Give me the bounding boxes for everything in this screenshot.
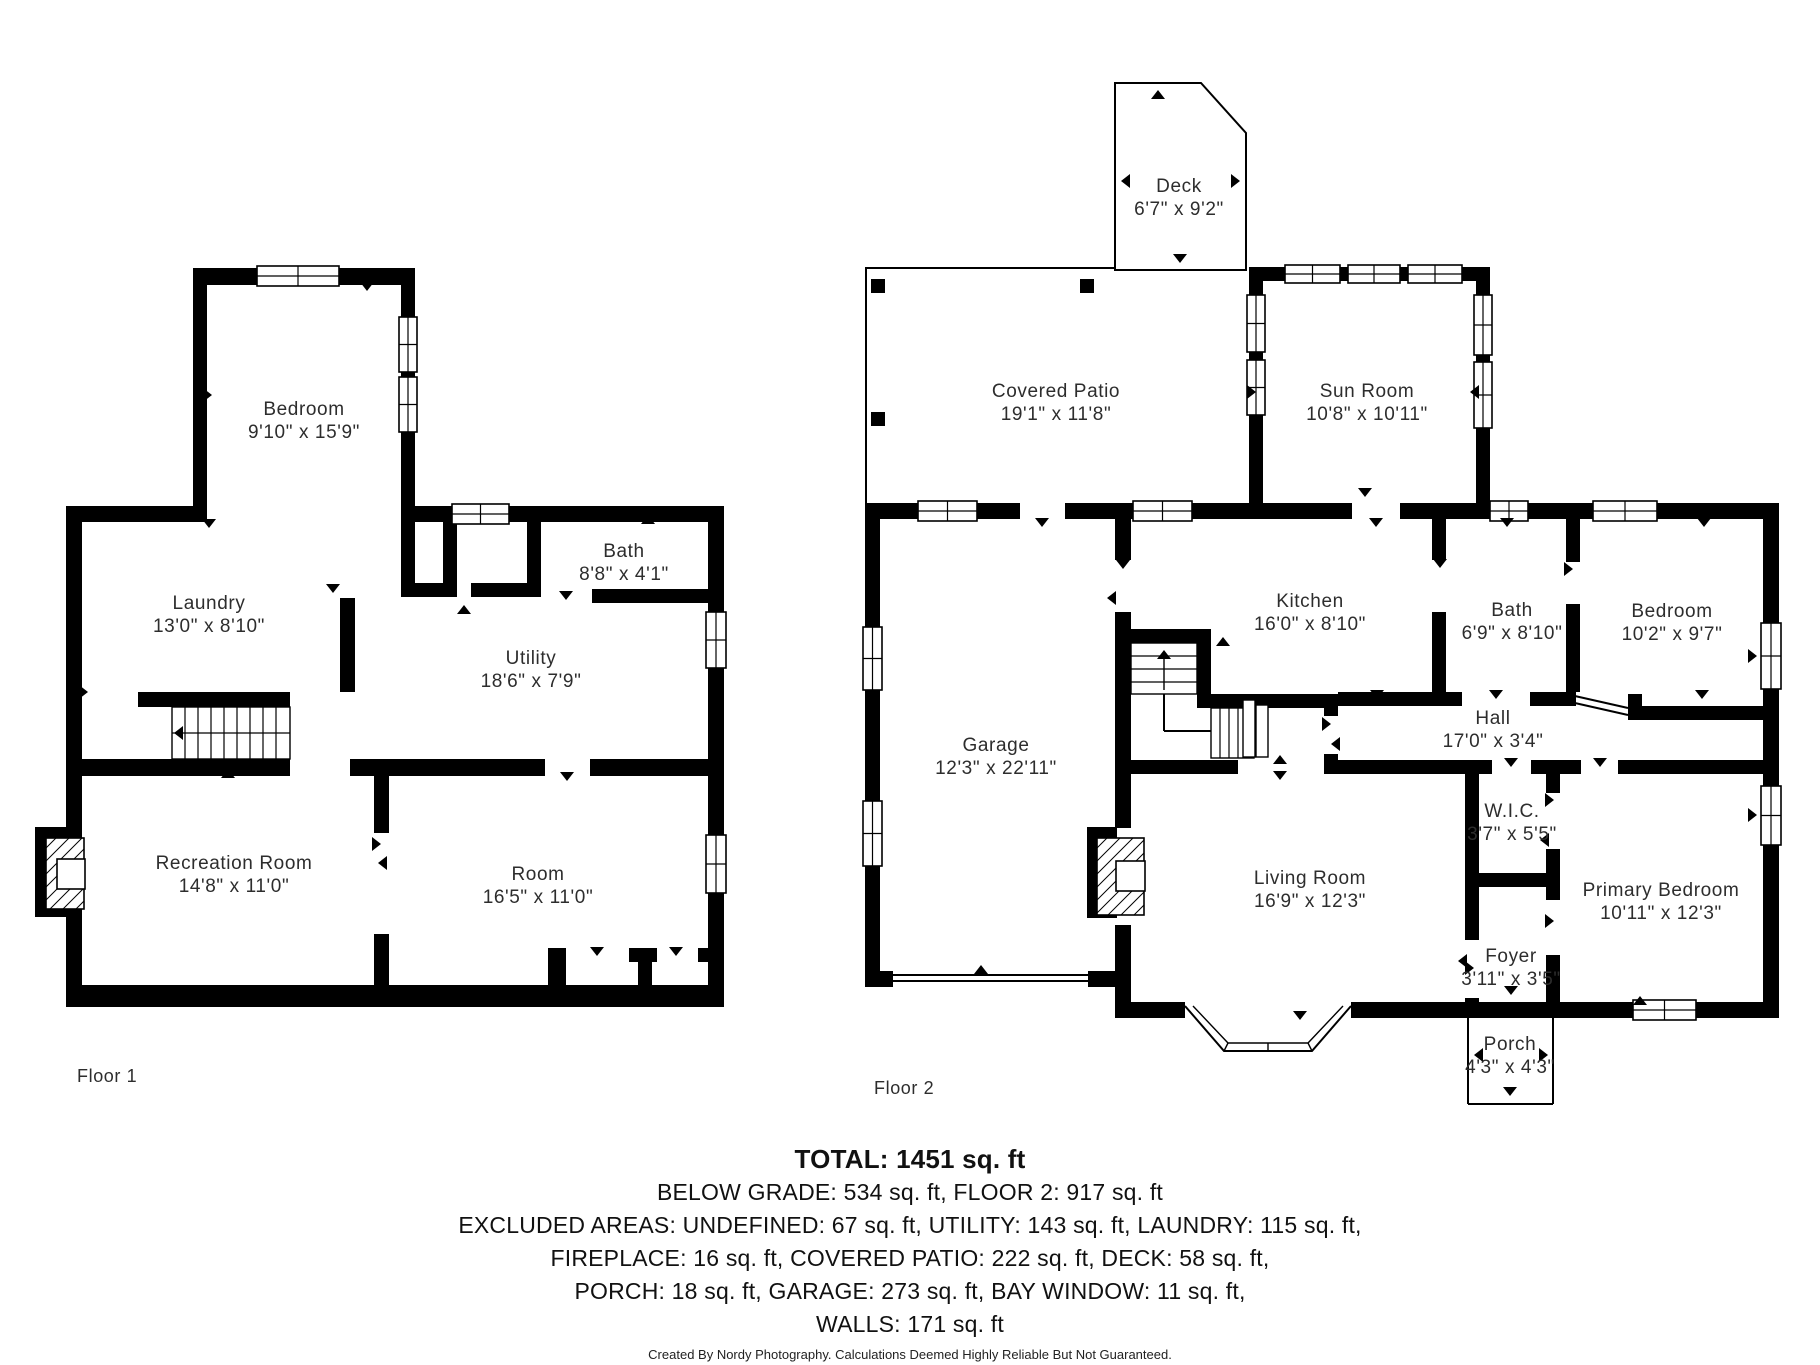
wall — [638, 948, 652, 999]
room-name: Bedroom — [248, 398, 360, 421]
wall — [1657, 503, 1777, 519]
door-marker — [1273, 755, 1287, 764]
bay-window-inner — [1193, 1006, 1343, 1043]
wall — [975, 503, 1020, 519]
wall — [865, 971, 893, 987]
door-marker — [1322, 717, 1331, 731]
wall — [1115, 925, 1131, 1018]
wall — [1197, 643, 1211, 708]
wall — [1566, 604, 1580, 692]
room-name: W.I.C. — [1467, 800, 1557, 823]
room-label-porch: Porch 4'3" x 4'3" — [1465, 1033, 1555, 1079]
door-marker — [1273, 771, 1287, 780]
door-marker — [457, 605, 471, 614]
door-marker — [1358, 488, 1372, 497]
wall — [1465, 873, 1560, 887]
summary-total: TOTAL: 1451 sq. ft — [0, 1142, 1820, 1176]
room-name: Laundry — [153, 592, 265, 615]
summary-line: BELOW GRADE: 534 sq. ft, FLOOR 2: 917 sq… — [0, 1176, 1820, 1209]
wall — [66, 506, 82, 1007]
room-dims: 13'0" x 8'10" — [153, 615, 265, 638]
wall — [1351, 1002, 1465, 1018]
wall — [401, 583, 457, 597]
room-label-wic: W.I.C. 3'7" x 5'5" — [1467, 800, 1557, 846]
room-name: Deck — [1134, 175, 1224, 198]
patio-post — [871, 412, 885, 426]
room-dims: 3'11" x 3'5" — [1461, 968, 1560, 991]
wall — [527, 522, 541, 583]
wall — [443, 522, 457, 583]
room-dims: 9'10" x 15'9" — [248, 421, 360, 444]
door-marker — [1489, 690, 1503, 699]
door-marker — [1216, 637, 1230, 646]
room-dims: 10'2" x 9'7" — [1622, 623, 1723, 646]
wall — [1528, 503, 1595, 519]
room-name: Room — [483, 863, 594, 886]
door-marker — [590, 947, 604, 956]
door-marker — [79, 685, 88, 699]
room-dims: 16'5" x 11'0" — [483, 886, 594, 909]
room-name: Bath — [579, 540, 669, 563]
fireplace-firebox — [57, 859, 85, 889]
room-label-primary-bedroom: Primary Bedroom 10'11" x 12'3" — [1583, 879, 1740, 925]
room-name: Primary Bedroom — [1583, 879, 1740, 902]
room-dims: 6'9" x 8'10" — [1462, 622, 1563, 645]
room-name: Living Room — [1254, 867, 1366, 890]
room-label-foyer: Foyer 3'11" x 3'5" — [1461, 945, 1560, 991]
door-marker — [1293, 1011, 1307, 1020]
room-name: Sun Room — [1306, 380, 1428, 403]
wall — [66, 759, 290, 776]
wall — [350, 759, 545, 776]
floorplan-canvas: Bedroom 9'10" x 15'9" Laundry 13'0" x 8'… — [0, 0, 1820, 1365]
door-marker — [560, 772, 574, 781]
door-marker — [1748, 649, 1757, 663]
door-marker — [974, 965, 988, 974]
wall — [590, 759, 724, 776]
room-label-laundry: Laundry 13'0" x 8'10" — [153, 592, 265, 638]
fireplace-firebox — [1116, 861, 1145, 891]
room-label-hall: Hall 17'0" x 3'4" — [1443, 707, 1544, 753]
floor1-caption: Floor 1 — [77, 1066, 137, 1087]
door-marker — [1503, 1087, 1517, 1096]
room-name: Covered Patio — [992, 380, 1120, 403]
wall — [1324, 694, 1338, 716]
door-marker — [1107, 591, 1116, 605]
wall — [698, 948, 724, 962]
room-name: Bedroom — [1622, 600, 1723, 623]
room-name: Recreation Room — [156, 852, 313, 875]
thin-wall-line — [1566, 701, 1628, 715]
bay-window-mullion — [1224, 1043, 1228, 1051]
room-label-deck: Deck 6'7" x 9'2" — [1134, 175, 1224, 221]
room-dims: 4'3" x 4'3" — [1465, 1056, 1555, 1079]
room-label-bath-f1: Bath 8'8" x 4'1" — [579, 540, 669, 586]
wall — [865, 503, 880, 985]
wall — [1465, 998, 1479, 1012]
room-dims: 16'9" x 12'3" — [1254, 890, 1366, 913]
wall — [1115, 770, 1131, 828]
room-name: Porch — [1465, 1033, 1555, 1056]
room-dims: 16'0" x 8'10" — [1254, 613, 1366, 636]
patio-post — [1080, 279, 1094, 293]
wall — [471, 583, 541, 597]
closet-door-panel — [1256, 705, 1268, 757]
wall — [66, 985, 724, 1007]
door-marker — [1035, 518, 1049, 527]
area-summary: TOTAL: 1451 sq. ft BELOW GRADE: 534 sq. … — [0, 1142, 1820, 1362]
room-dims: 18'6" x 7'9" — [481, 670, 582, 693]
room-label-kitchen: Kitchen 16'0" x 8'10" — [1254, 590, 1366, 636]
floor2-caption: Floor 2 — [874, 1078, 934, 1099]
room-dims: 19'1" x 11'8" — [992, 403, 1120, 426]
summary-credit: Created By Nordy Photography. Calculatio… — [0, 1347, 1820, 1362]
wall — [1546, 998, 1560, 1012]
room-label-room: Room 16'5" x 11'0" — [483, 863, 594, 909]
wall — [548, 948, 566, 999]
door-marker — [203, 388, 212, 402]
wall — [1065, 503, 1135, 519]
door-marker — [1697, 518, 1711, 527]
wall — [1566, 517, 1580, 562]
door-marker — [1695, 690, 1709, 699]
room-label-living-room: Living Room 16'9" x 12'3" — [1254, 867, 1366, 913]
wall — [1131, 629, 1211, 643]
room-name: Garage — [935, 734, 1057, 757]
room-dims: 14'8" x 11'0" — [156, 875, 313, 898]
room-dims: 8'8" x 4'1" — [579, 563, 669, 586]
room-label-sun-room: Sun Room 10'8" x 10'11" — [1306, 380, 1428, 426]
wall — [374, 776, 389, 833]
wall — [340, 598, 355, 692]
room-label-recreation-room: Recreation Room 14'8" x 11'0" — [156, 852, 313, 898]
room-dims: 17'0" x 3'4" — [1443, 730, 1544, 753]
room-dims: 10'8" x 10'11" — [1306, 403, 1428, 426]
wall — [66, 506, 193, 522]
wall — [1432, 612, 1446, 706]
patio-post — [871, 279, 885, 293]
wall — [1465, 887, 1479, 940]
room-label-utility: Utility 18'6" x 7'9" — [481, 647, 582, 693]
bay-window-mullion — [1308, 1043, 1312, 1051]
wall — [1465, 760, 1492, 774]
door-marker — [1433, 559, 1447, 568]
door-marker — [1116, 560, 1130, 569]
summary-line: WALLS: 171 sq. ft — [0, 1308, 1820, 1341]
room-label-bedroom-f2: Bedroom 10'2" x 9'7" — [1622, 600, 1723, 646]
room-dims: 6'7" x 9'2" — [1134, 198, 1224, 221]
wall — [138, 692, 290, 707]
wall — [1628, 706, 1763, 720]
door-marker — [559, 591, 573, 600]
room-dims: 12'3" x 22'11" — [935, 757, 1057, 780]
wall — [1115, 612, 1131, 770]
wall — [1338, 692, 1432, 706]
wall — [1446, 692, 1462, 706]
wall — [1131, 760, 1238, 774]
wall — [1115, 517, 1131, 560]
door-marker — [1564, 562, 1573, 576]
room-dims: 10'11" x 12'3" — [1583, 902, 1740, 925]
summary-line: PORCH: 18 sq. ft, GARAGE: 273 sq. ft, BA… — [0, 1275, 1820, 1308]
room-name: Foyer — [1461, 945, 1560, 968]
door-marker — [669, 947, 683, 956]
wall — [1211, 694, 1338, 708]
wall — [1432, 517, 1446, 560]
door-marker — [378, 856, 387, 870]
door-marker — [1331, 737, 1340, 751]
wall — [374, 934, 389, 1007]
door-marker — [326, 584, 340, 593]
door-marker — [1369, 518, 1383, 527]
door-marker — [360, 282, 374, 291]
wall — [1546, 887, 1560, 900]
room-name: Kitchen — [1254, 590, 1366, 613]
room-name: Utility — [481, 647, 582, 670]
wall — [1618, 760, 1763, 774]
door-marker — [1545, 914, 1554, 928]
summary-line: FIREPLACE: 16 sq. ft, COVERED PATIO: 222… — [0, 1242, 1820, 1275]
room-name: Hall — [1443, 707, 1544, 730]
room-dims: 3'7" x 5'5" — [1467, 823, 1557, 846]
room-label-covered-patio: Covered Patio 19'1" x 11'8" — [992, 380, 1120, 426]
room-name: Bath — [1462, 599, 1563, 622]
door-marker — [372, 837, 381, 851]
door-marker — [1593, 758, 1607, 767]
room-label-bath-f2: Bath 6'9" x 8'10" — [1462, 599, 1563, 645]
closet-door-panel — [1243, 700, 1255, 757]
wall — [1546, 760, 1560, 793]
wall — [1763, 503, 1779, 1018]
wall — [592, 589, 708, 603]
wall — [1190, 503, 1352, 519]
door-marker — [202, 519, 216, 528]
door-marker — [1504, 758, 1518, 767]
summary-line: EXCLUDED AREAS: UNDEFINED: 67 sq. ft, UT… — [0, 1209, 1820, 1242]
door-marker — [1500, 518, 1514, 527]
door-marker — [1748, 808, 1757, 822]
room-label-garage: Garage 12'3" x 22'11" — [935, 734, 1057, 780]
wall — [708, 506, 724, 1007]
room-label-bedroom-f1: Bedroom 9'10" x 15'9" — [248, 398, 360, 444]
wall — [1324, 760, 1465, 774]
